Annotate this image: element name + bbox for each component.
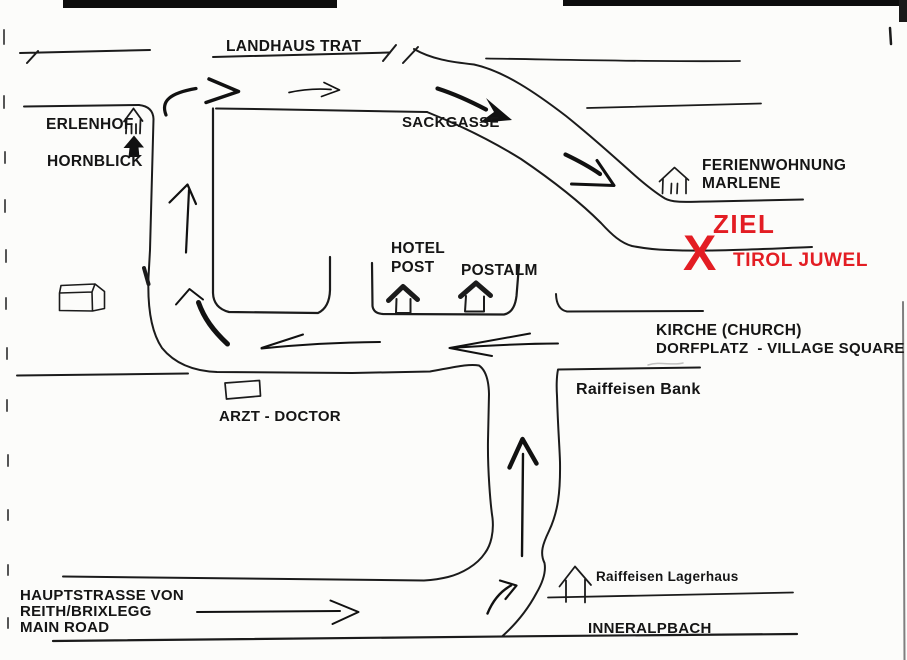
curve-arrow-1-shaft bbox=[438, 89, 487, 110]
label-hotel: HOTEL bbox=[391, 241, 445, 257]
destination-x-marker: X bbox=[683, 228, 716, 278]
label-post: POST bbox=[391, 260, 434, 276]
road-block-west bbox=[213, 109, 330, 314]
west-arrow-village-road-1 bbox=[262, 335, 381, 349]
hotel-post-house-icon bbox=[389, 287, 418, 314]
map-page: LANDHAUS TRAT ERLENHOF HORNBLICK SACKGAS… bbox=[0, 0, 907, 660]
label-inneralpbach: INNERALPBACH bbox=[588, 621, 712, 636]
turn-right-arrow-top-head bbox=[206, 79, 239, 103]
turn-north-junction-arrow-shaft bbox=[488, 586, 512, 614]
label-hauptstrasse-von: HAUPTSTRASSE VON bbox=[20, 588, 184, 603]
road-vertical-west-line bbox=[139, 105, 352, 373]
road-curve-entry-slashes bbox=[383, 45, 418, 63]
scan-artifact-top-bar-left bbox=[63, 0, 337, 8]
road-village-south-edge-and-lane-west-line bbox=[63, 365, 493, 581]
label-kirche: KIRCHE (CHURCH) bbox=[656, 323, 802, 339]
label-arzt-doctor: ARZT - DOCTOR bbox=[219, 409, 341, 424]
east-arrow-main-road bbox=[197, 601, 359, 625]
north-arrow-south-lane-shaft bbox=[522, 454, 523, 556]
scan-artifact-fold-tick bbox=[890, 28, 891, 44]
ferienwohnung-house-icon bbox=[660, 168, 689, 194]
label-tirol-juwel: TIROL JUWEL bbox=[733, 251, 868, 270]
east-arrow-top bbox=[289, 83, 340, 97]
north-arrow-west-lane bbox=[170, 185, 197, 253]
curve-arrow-2-shaft bbox=[566, 155, 601, 175]
label-postalm: POSTALM bbox=[461, 263, 538, 279]
road-top-right bbox=[486, 59, 740, 62]
label-dorfplatz: DORFPLATZ - VILLAGE SQUARE bbox=[656, 341, 905, 356]
barn-icon bbox=[60, 284, 105, 311]
arzt-building-icon bbox=[225, 381, 261, 400]
west-arrow-village-road-2 bbox=[450, 334, 559, 357]
road-kirche-north-edge bbox=[556, 294, 703, 312]
label-erlenhof: ERLENHOF bbox=[46, 117, 134, 133]
label-marlene: MARLENE bbox=[702, 176, 781, 192]
label-landhaus-trat: LANDHAUS TRAT bbox=[226, 39, 361, 55]
turn-north-junction-arrow-head bbox=[500, 581, 517, 600]
road-top-left bbox=[20, 50, 150, 63]
road-retrace-mark bbox=[144, 268, 149, 284]
curve-arrow-2-head bbox=[572, 161, 615, 186]
road-sackgasse-west bbox=[216, 109, 427, 113]
label-hornblick: HORNBLICK bbox=[47, 154, 143, 170]
road-erlenhof bbox=[24, 105, 139, 107]
label-ziel: ZIEL bbox=[713, 211, 775, 237]
label-reith-brixlegg: REITH/BRIXLEGG bbox=[20, 604, 152, 619]
label-raiffeisen-lagerhaus: Raiffeisen Lagerhaus bbox=[596, 570, 739, 584]
scan-artifact-top-right-corner bbox=[899, 0, 907, 22]
road-village-south-edge-west bbox=[17, 374, 188, 376]
turn-right-arrow-top bbox=[164, 89, 196, 116]
road-sackgasse-east bbox=[587, 104, 761, 109]
scan-artifact-left-edge-dashes bbox=[4, 30, 8, 628]
label-main-road: MAIN ROAD bbox=[20, 620, 109, 635]
label-sackgasse: SACKGASSE bbox=[402, 115, 500, 130]
route-arrows bbox=[164, 79, 614, 624]
scan-artifact-top-bar-right bbox=[563, 0, 907, 6]
pencil-scribble bbox=[648, 363, 683, 365]
label-ferienwohnung: FERIENWOHNUNG bbox=[702, 158, 846, 174]
label-raiffeisen-bank: Raiffeisen Bank bbox=[576, 382, 701, 398]
postalm-house-icon bbox=[461, 283, 491, 312]
